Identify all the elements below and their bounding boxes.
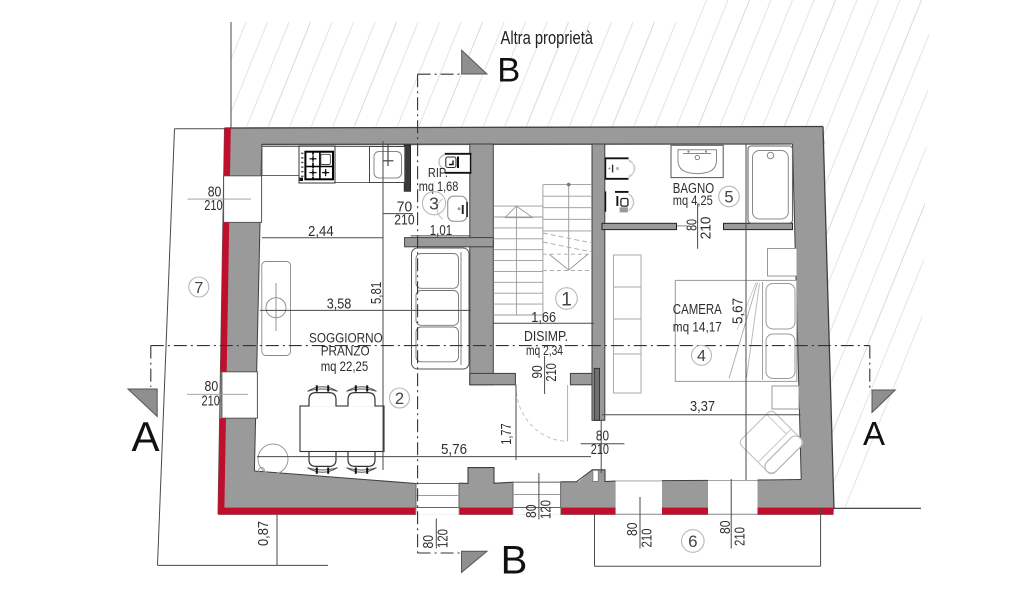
- svg-text:210: 210: [202, 394, 220, 410]
- svg-text:B: B: [501, 539, 528, 583]
- svg-text:5,76: 5,76: [441, 442, 467, 458]
- svg-text:6: 6: [688, 532, 697, 551]
- svg-text:210: 210: [591, 442, 609, 458]
- svg-text:2: 2: [395, 390, 404, 408]
- svg-text:2,44: 2,44: [308, 224, 334, 240]
- svg-text:mq 4,25: mq 4,25: [673, 193, 713, 208]
- svg-text:A: A: [132, 413, 160, 460]
- svg-text:5,81: 5,81: [369, 282, 385, 304]
- svg-text:A: A: [863, 415, 885, 452]
- svg-text:1,77: 1,77: [499, 423, 515, 444]
- svg-text:0,87: 0,87: [256, 521, 272, 546]
- svg-text:3,58: 3,58: [327, 297, 352, 313]
- svg-text:mq 2,34: mq 2,34: [526, 343, 563, 358]
- svg-text:PRANZO: PRANZO: [321, 343, 370, 359]
- svg-text:mq 14,17: mq 14,17: [673, 320, 722, 335]
- svg-text:1,66: 1,66: [531, 310, 556, 326]
- svg-text:5,67: 5,67: [731, 298, 747, 324]
- svg-text:1,01: 1,01: [430, 223, 452, 239]
- svg-text:1: 1: [561, 289, 572, 310]
- svg-text:120: 120: [538, 500, 554, 519]
- svg-text:Altra proprietà: Altra proprietà: [501, 28, 594, 48]
- svg-text:210: 210: [544, 363, 560, 381]
- svg-text:mq 1,68: mq 1,68: [419, 179, 459, 194]
- svg-text:3: 3: [429, 194, 439, 214]
- svg-text:120: 120: [435, 529, 451, 548]
- svg-text:CAMERA: CAMERA: [673, 302, 722, 318]
- svg-text:5: 5: [724, 188, 733, 206]
- svg-text:4: 4: [697, 348, 706, 365]
- svg-text:210: 210: [394, 213, 414, 229]
- svg-text:7: 7: [194, 280, 203, 297]
- svg-text:RIP.: RIP.: [428, 165, 448, 180]
- svg-text:3,37: 3,37: [690, 399, 715, 415]
- svg-text:B: B: [497, 52, 520, 90]
- svg-text:mq 22,25: mq 22,25: [321, 359, 369, 374]
- svg-text:210: 210: [733, 527, 749, 546]
- svg-text:210: 210: [204, 198, 222, 214]
- svg-text:210: 210: [640, 528, 656, 547]
- svg-text:210: 210: [699, 217, 715, 240]
